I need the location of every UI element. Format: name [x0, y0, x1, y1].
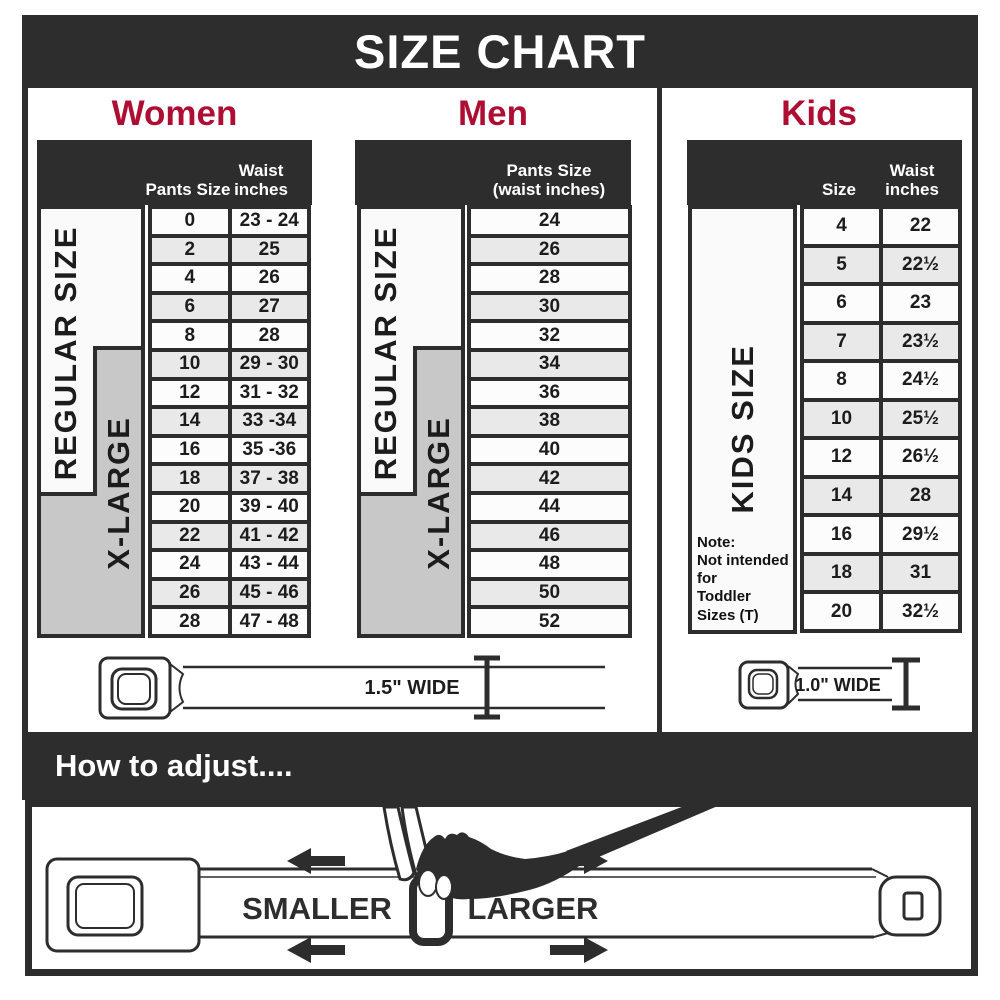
size-cell: 26: [230, 264, 310, 293]
size-row: 1837 - 38: [150, 464, 309, 493]
size-cell: 33 -34: [230, 407, 310, 436]
size-cell: 23 - 24: [230, 207, 310, 236]
size-cell: 16: [150, 436, 230, 465]
women-xlarge-label: X-LARGE: [101, 416, 136, 570]
kids-table-header: Size Waist inches: [687, 140, 962, 205]
size-cell: 52: [469, 607, 630, 636]
size-row: 1433 -34: [150, 407, 309, 436]
size-cell: 28: [881, 477, 960, 516]
size-cell: 23½: [881, 323, 960, 362]
size-cell: 30: [469, 293, 630, 322]
size-row: 2847 - 48: [150, 607, 309, 636]
size-cell: 28: [230, 321, 310, 350]
size-cell: 36: [469, 379, 630, 408]
adjust-illustration-panel: SMALLER LARGER: [25, 800, 978, 976]
size-cell: 24: [150, 550, 230, 579]
size-cell: 18: [802, 554, 881, 593]
size-row: 627: [150, 293, 309, 322]
size-row: 26: [469, 236, 630, 265]
size-cell: 45 - 46: [230, 579, 310, 608]
size-row: 34: [469, 350, 630, 379]
size-cell: 16: [802, 515, 881, 554]
size-cell: 4: [150, 264, 230, 293]
size-cell: 29 - 30: [230, 350, 310, 379]
size-cell: 12: [802, 438, 881, 477]
size-cell: 8: [802, 361, 881, 400]
kids-note-line: Note:: [697, 534, 793, 552]
size-cell: 22: [881, 207, 960, 246]
size-cell: 39 - 40: [230, 493, 310, 522]
size-cell: 20: [150, 493, 230, 522]
size-cell: 28: [150, 607, 230, 636]
size-row: 48: [469, 550, 630, 579]
size-cell: 35 -36: [230, 436, 310, 465]
adjust-illustration: SMALLER LARGER: [32, 807, 971, 969]
size-row: 824½: [802, 361, 960, 400]
kids-heading: Kids: [664, 94, 974, 134]
size-cell: 20: [802, 592, 881, 631]
size-cell: 12: [150, 379, 230, 408]
kids-note-line: Not intended for: [697, 552, 793, 589]
women-table-header: Pants Size Waist inches: [37, 140, 312, 205]
size-cell: 31: [881, 554, 960, 593]
size-row: 2039 - 40: [150, 493, 309, 522]
women-heading: Women: [37, 94, 312, 134]
seatbelt-buckle-icon: [740, 662, 798, 708]
size-cell: 18: [150, 464, 230, 493]
size-row: 2241 - 42: [150, 522, 309, 551]
size-cell: 0: [150, 207, 230, 236]
size-row: 44: [469, 493, 630, 522]
size-row: 36: [469, 379, 630, 408]
size-row: 52: [469, 607, 630, 636]
page-title: SIZE CHART: [354, 24, 646, 79]
size-cell: 27: [230, 293, 310, 322]
title-bar: SIZE CHART: [22, 15, 978, 88]
size-cell: 24: [469, 207, 630, 236]
size-row: 30: [469, 293, 630, 322]
size-cell: 23: [881, 284, 960, 323]
size-chart-page: SIZE CHART Women Men Kids Pants Size Wai…: [0, 0, 1000, 1000]
size-row: 723½: [802, 323, 960, 362]
size-row: 46: [469, 522, 630, 551]
size-cell: 5: [802, 246, 881, 285]
size-row: 1831: [802, 554, 960, 593]
size-cell: 43 - 44: [230, 550, 310, 579]
size-cell: 14: [802, 477, 881, 516]
size-row: 40: [469, 436, 630, 465]
women-region-labels: REGULAR SIZE X-LARGE: [37, 205, 145, 638]
larger-label: LARGER: [468, 891, 599, 926]
kids-note-line: Toddler Sizes (T): [697, 588, 793, 625]
kids-col-waist: Waist inches: [877, 161, 947, 200]
size-cell: 31 - 32: [230, 379, 310, 408]
size-row: 522½: [802, 246, 960, 285]
size-cell: 26: [150, 579, 230, 608]
kids-region-label-box: KIDS SIZE Note: Not intended for Toddler…: [688, 205, 797, 634]
size-row: 1629½: [802, 515, 960, 554]
size-cell: 38: [469, 407, 630, 436]
seatbelt-buckle-icon: [100, 658, 183, 718]
kids-size-label: KIDS SIZE: [725, 344, 761, 514]
size-row: 2032½: [802, 592, 960, 631]
kids-size-table: 422522½623723½824½1025½1226½14281629½183…: [800, 205, 962, 633]
size-cell: 7: [802, 323, 881, 362]
women-col-pants-size: Pants Size: [144, 180, 232, 200]
size-row: 422: [802, 207, 960, 246]
size-cell: 22: [150, 522, 230, 551]
size-cell: 14: [150, 407, 230, 436]
smaller-label: SMALLER: [242, 891, 392, 926]
size-cell: 25½: [881, 400, 960, 439]
men-col-waist-inches: (waist inches): [469, 180, 629, 200]
seatbelt-buckle-icon: [47, 859, 199, 951]
size-row: 023 - 24: [150, 207, 309, 236]
size-row: 1226½: [802, 438, 960, 477]
size-row: 1025½: [802, 400, 960, 439]
size-cell: 2: [150, 236, 230, 265]
women-size-table: 023 - 242254266278281029 - 301231 - 3214…: [148, 205, 311, 638]
men-xlarge-label: X-LARGE: [421, 416, 456, 570]
size-row: 38: [469, 407, 630, 436]
men-region-labels: REGULAR SIZE X-LARGE: [357, 205, 465, 638]
size-cell: 24½: [881, 361, 960, 400]
size-cell: 26: [469, 236, 630, 265]
size-cell: 34: [469, 350, 630, 379]
size-cell: 32½: [881, 592, 960, 631]
how-to-adjust-label: How to adjust....: [55, 748, 293, 784]
adult-belt-width-label: 1.5" WIDE: [364, 677, 459, 699]
size-cell: 37 - 38: [230, 464, 310, 493]
size-cell: 22½: [881, 246, 960, 285]
kids-belt-width-label: 1.0" WIDE: [795, 675, 881, 695]
women-regular-size-label: REGULAR SIZE: [48, 226, 83, 481]
adult-belt-illustration: 1.5" WIDE: [85, 650, 625, 725]
men-heading: Men: [355, 94, 631, 134]
size-cell: 47 - 48: [230, 607, 310, 636]
size-cell: 10: [150, 350, 230, 379]
size-row: 2443 - 44: [150, 550, 309, 579]
size-cell: 48: [469, 550, 630, 579]
size-row: 426: [150, 264, 309, 293]
size-row: 24: [469, 207, 630, 236]
women-col-waist: Waist inches: [226, 161, 296, 200]
size-cell: 25: [230, 236, 310, 265]
belt-tongue-icon: [880, 877, 940, 935]
size-row: 225: [150, 236, 309, 265]
size-cell: 29½: [881, 515, 960, 554]
size-row: 623: [802, 284, 960, 323]
size-row: 28: [469, 264, 630, 293]
kids-col-size: Size: [795, 180, 883, 200]
size-row: 828: [150, 321, 309, 350]
panel-divider: [657, 88, 662, 732]
size-row: 2645 - 46: [150, 579, 309, 608]
size-cell: 6: [802, 284, 881, 323]
hand-icon: [384, 807, 720, 899]
kids-belt-illustration: 1.0" WIDE: [720, 648, 950, 723]
width-measure-mark: [892, 658, 920, 710]
men-col-pants-size: Pants Size: [469, 161, 629, 181]
size-cell: 41 - 42: [230, 522, 310, 551]
men-size-table: 242628303234363840424446485052: [467, 205, 632, 638]
size-row: 1635 -36: [150, 436, 309, 465]
size-cell: 4: [802, 207, 881, 246]
kids-note: Note: Not intended for Toddler Sizes (T): [697, 534, 793, 625]
size-row: 1428: [802, 477, 960, 516]
size-row: 32: [469, 321, 630, 350]
size-cell: 8: [150, 321, 230, 350]
size-cell: 28: [469, 264, 630, 293]
men-regular-size-label: REGULAR SIZE: [368, 226, 403, 481]
width-measure-mark: [474, 656, 500, 719]
size-cell: 44: [469, 493, 630, 522]
size-cell: 26½: [881, 438, 960, 477]
men-table-header: Pants Size (waist inches): [355, 140, 631, 205]
size-cell: 46: [469, 522, 630, 551]
size-row: 1231 - 32: [150, 379, 309, 408]
size-cell: 42: [469, 464, 630, 493]
size-cell: 50: [469, 579, 630, 608]
size-row: 50: [469, 579, 630, 608]
size-row: 42: [469, 464, 630, 493]
size-cell: 10: [802, 400, 881, 439]
size-cell: 6: [150, 293, 230, 322]
size-cell: 40: [469, 436, 630, 465]
size-cell: 32: [469, 321, 630, 350]
how-to-adjust-bar: How to adjust....: [22, 732, 978, 800]
size-row: 1029 - 30: [150, 350, 309, 379]
